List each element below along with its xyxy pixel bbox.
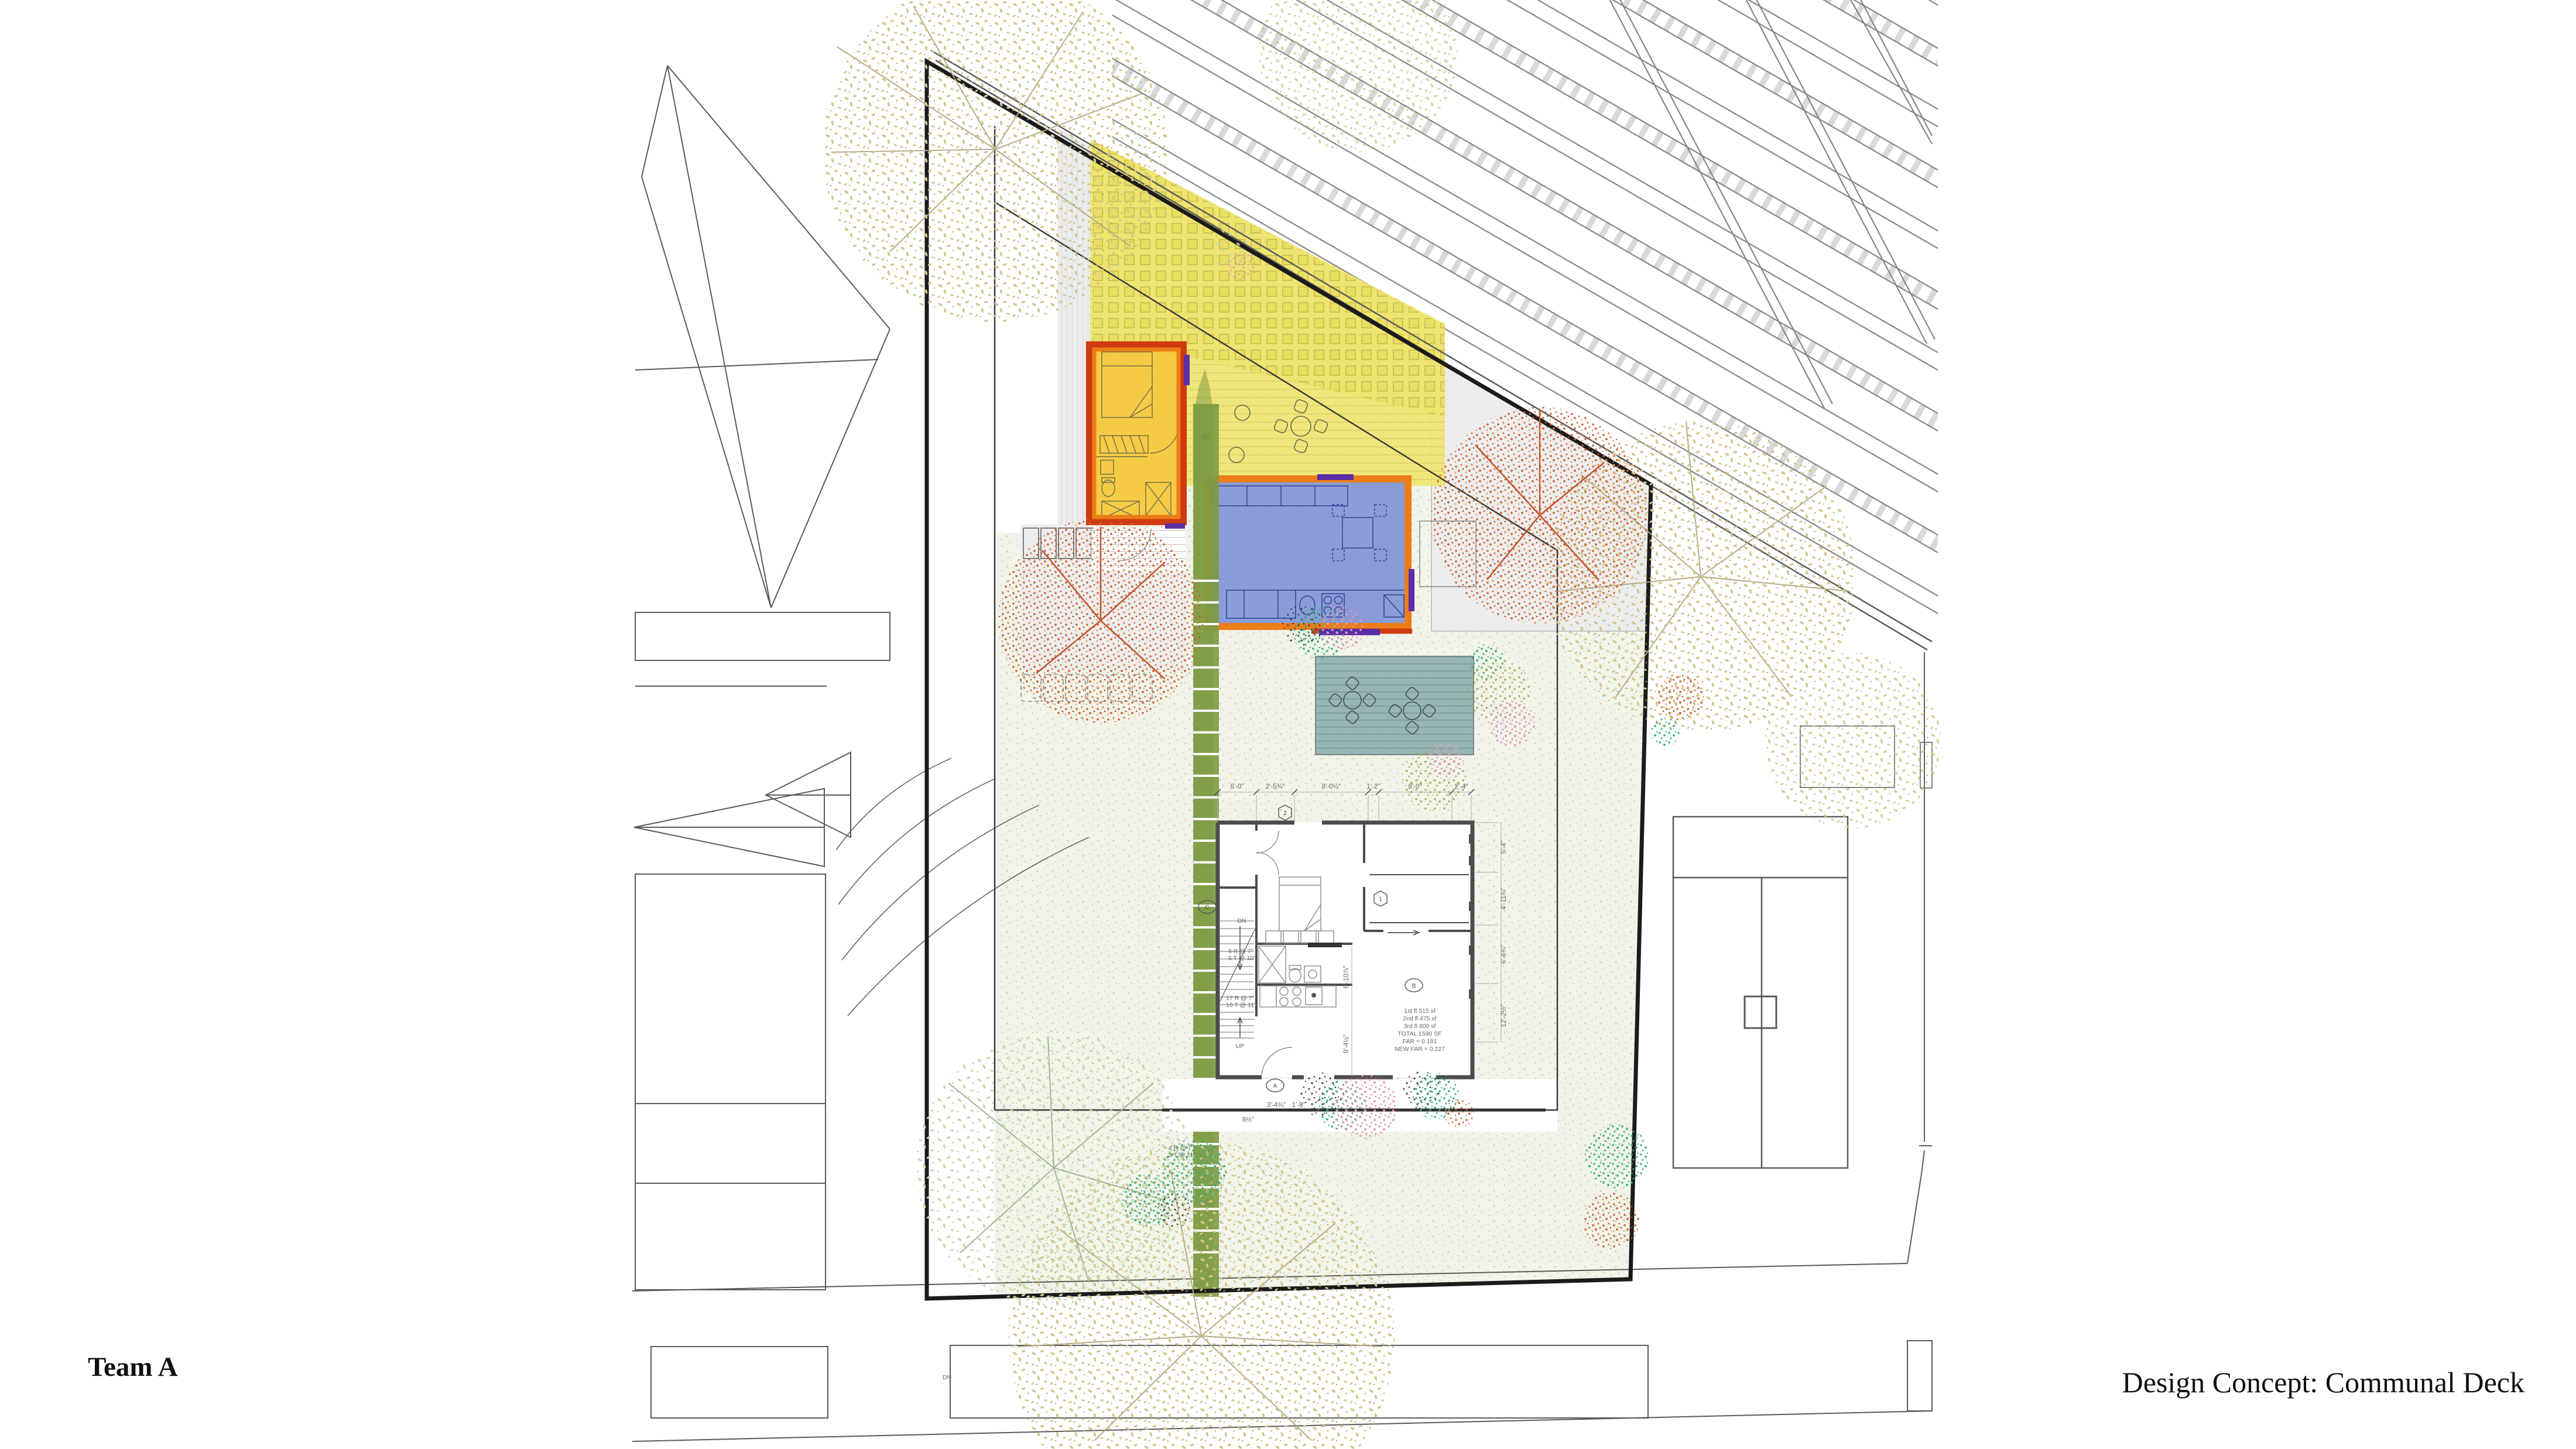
dim-right-1: 5'-4" bbox=[1501, 841, 1508, 854]
team-label: Team A bbox=[88, 1351, 178, 1383]
oval-tag-a: A bbox=[1273, 1083, 1277, 1090]
tree-red-east bbox=[1431, 407, 1648, 624]
dim-int-1: 6'-10⅞" bbox=[1343, 966, 1350, 989]
tree-tan-neighbor bbox=[1765, 653, 1941, 828]
dim-top-2: 2'-5¾" bbox=[1266, 783, 1285, 790]
area-line-2: 2nd fl 475 sf bbox=[1403, 1015, 1436, 1022]
dim-bottom-1: 3'-4¾" bbox=[1267, 1102, 1286, 1109]
stair-note-3: 17 R @ 7" bbox=[1226, 995, 1255, 1002]
dim-bottom-3: 8½" bbox=[1242, 1116, 1254, 1123]
unit-a-orange bbox=[1090, 345, 1183, 521]
dim-right-3: 6'-6¾" bbox=[1501, 945, 1508, 964]
tree-red-patio bbox=[998, 518, 1203, 723]
area-line-1: 1st fl 515 sf bbox=[1404, 1008, 1436, 1015]
site-plan-drawing: 6'-0" 2'-5¾" 8'-0¼" 1'-2" 8'-0" 2'-4" 5'… bbox=[0, 0, 2576, 1449]
area-line-3: 3rd fl 600 sf bbox=[1404, 1023, 1436, 1030]
tree-green-bottomleft bbox=[916, 1030, 1191, 1306]
area-line-4: TOTAL 1590 SF bbox=[1397, 1030, 1441, 1037]
site-plan-page: 6'-0" 2'-5¾" 8'-0¼" 1'-2" 8'-0" 2'-4" 5'… bbox=[0, 0, 2576, 1449]
stair-note-4: 16 T @ 11" bbox=[1226, 1002, 1256, 1009]
area-line-6: NEW FAR = 0.227 bbox=[1395, 1046, 1445, 1053]
dim-int-2: 9'-4½" bbox=[1343, 1034, 1350, 1054]
stair-note-2: 5 T @ 10" bbox=[1228, 955, 1256, 962]
dim-top-4: 1'-2" bbox=[1367, 783, 1381, 790]
hexagon-tag-room: 1 bbox=[1379, 896, 1382, 903]
hexagon-tag-top: 2 bbox=[1283, 810, 1287, 817]
stair-dn-label: DN bbox=[1237, 917, 1246, 924]
dim-right-4: 12'-2½" bbox=[1501, 1005, 1508, 1027]
dim-top-3: 8'-0¼" bbox=[1322, 783, 1341, 790]
parking-strip-left bbox=[651, 1347, 828, 1418]
parking-strip-right bbox=[1907, 1341, 1932, 1411]
stair-note-1: 6 R @ 7" bbox=[1228, 948, 1253, 955]
rail-crossovers bbox=[1606, 0, 1935, 408]
street-dn-label: DN bbox=[943, 1374, 951, 1381]
stair-up-label: UP bbox=[1236, 1043, 1245, 1050]
oval-tag-b: B bbox=[1412, 983, 1416, 989]
oval-tag-c: C bbox=[1205, 905, 1209, 911]
teal-deck bbox=[1316, 656, 1474, 755]
area-line-5: FAR = 0.181 bbox=[1403, 1038, 1437, 1045]
design-concept-label: Design Concept: Communal Deck bbox=[2122, 1365, 2524, 1399]
dim-top-1: 6'-0" bbox=[1231, 783, 1244, 790]
dim-right-2: 4'-11¾" bbox=[1501, 888, 1508, 910]
